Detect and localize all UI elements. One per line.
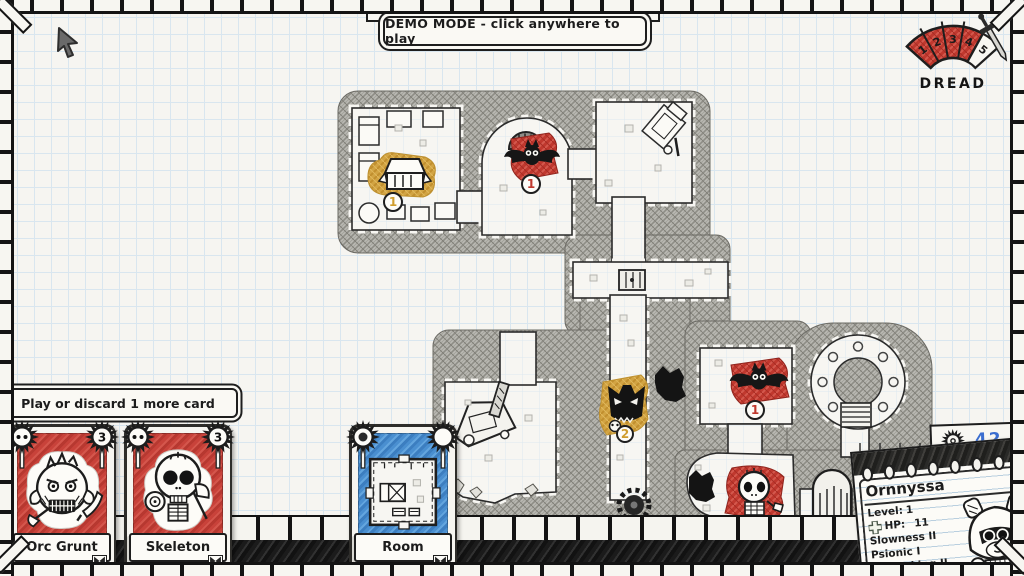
card-name: Skeleton: [146, 540, 210, 555]
mimic-value: 2: [621, 427, 629, 441]
chest-value: 1: [389, 195, 397, 209]
svg-text:3: 3: [98, 431, 106, 445]
character-sheet: Ornnyssa Level: 1 HP: 11 Slowness II Psi…: [850, 436, 1024, 576]
bat-top-value: 1: [527, 177, 535, 191]
level-value: 1: [905, 503, 914, 518]
room-type-icon: [346, 420, 380, 472]
demo-mode-label: DEMO MODE - click anywhere to play: [385, 16, 645, 46]
dread-label: DREAD: [920, 76, 987, 92]
dread-tick-3: 3: [949, 33, 957, 46]
sun-burst-icon: [426, 420, 460, 472]
monster-type-icon: [121, 420, 155, 472]
frame-right: [1010, 0, 1024, 576]
hp-cross-icon: [868, 520, 882, 534]
demo-mode-banner[interactable]: DEMO MODE - click anywhere to play: [383, 16, 647, 46]
frame-bottom: [0, 562, 1024, 576]
card-name: Orc Grunt: [26, 540, 98, 555]
frame-top: [0, 0, 1024, 14]
token-skeleton-map[interactable]: [725, 466, 784, 521]
play-prompt-banner: Play or discard 1 more card: [0, 388, 238, 418]
card-skeleton[interactable]: 3 Skeleton: [124, 424, 232, 571]
play-prompt-label: Play or discard 1 more card: [21, 396, 215, 411]
card-name: Room: [382, 540, 423, 555]
svg-text:3: 3: [214, 431, 222, 445]
card-level-badge: 3: [85, 420, 119, 472]
mouse-cursor-icon: [52, 26, 84, 62]
card-room[interactable]: Room: [349, 424, 457, 571]
card-level-badge: 3: [201, 420, 235, 472]
bat-right-value: 1: [751, 403, 759, 417]
frame-left: [0, 0, 14, 576]
hp-value: 11: [914, 515, 930, 530]
gate-arch: [813, 470, 851, 519]
game-screen: 1 1 1 2: [0, 0, 1024, 576]
